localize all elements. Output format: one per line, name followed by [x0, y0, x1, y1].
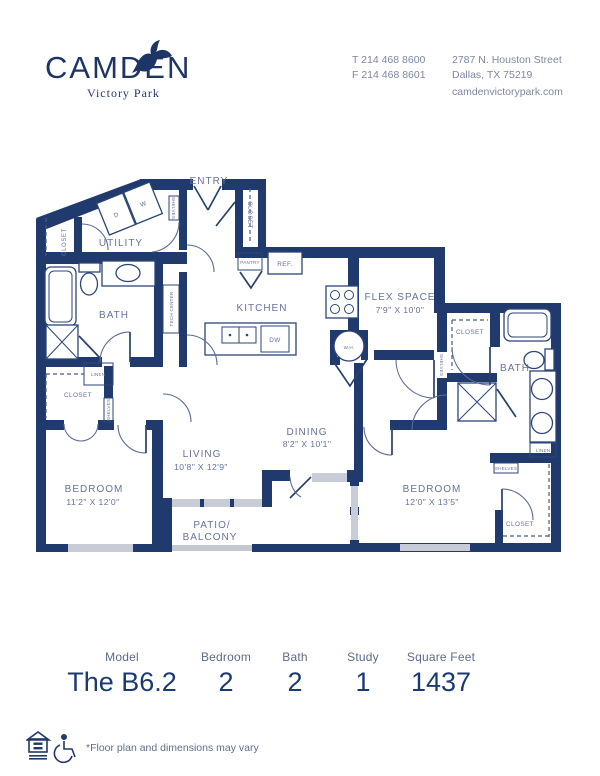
dim-living: 10'8" X 12'9" — [174, 462, 228, 472]
kitchen-island — [205, 323, 296, 355]
label-shelves-utility: SHELVES — [171, 197, 176, 219]
label-utility: UTILITY — [99, 238, 143, 249]
summary-study: Study 1 — [347, 650, 379, 698]
label-patio-2: BALCONY — [183, 532, 238, 543]
label-closet-bath2: CLOSET — [456, 329, 484, 336]
bathtub-1 — [45, 267, 76, 326]
label-bath2: BATH — [500, 363, 530, 374]
summary-study-value: 1 — [347, 667, 379, 698]
toilet-1 — [79, 263, 100, 295]
label-linen-2: LINEN — [536, 448, 551, 453]
summary-model: Model The B6.2 — [67, 650, 177, 698]
dim-dining: 8'2" X 10'1" — [283, 439, 332, 449]
footer-icons — [26, 730, 82, 764]
summary-bath-value: 2 — [282, 667, 308, 698]
summary-bedroom-value: 2 — [201, 667, 251, 698]
label-shelves-bedroom1: SHELVES — [106, 399, 111, 421]
washer-dryer — [97, 182, 163, 235]
dim-bedroom1: 11'2" X 12'0" — [66, 497, 119, 507]
label-pantry: PANTRY — [240, 260, 259, 265]
bathtub-2 — [504, 309, 551, 341]
dim-bedroom2: 12'0" X 13'5" — [405, 497, 459, 507]
label-living: LIVING — [183, 449, 222, 460]
summary-model-label: Model — [67, 650, 177, 664]
summary-bath-label: Bath — [282, 650, 308, 664]
label-entry: ENTRY — [190, 176, 229, 187]
label-closet-entry: CLOSET — [246, 201, 252, 229]
equal-housing-icon — [27, 732, 49, 760]
label-closet-topleft: CLOSET — [62, 228, 68, 256]
shower-1 — [46, 325, 101, 359]
label-patio-1: PATIO/ — [193, 520, 230, 531]
label-bath1: BATH — [99, 310, 129, 321]
label-dining: DINING — [287, 427, 328, 438]
summary-study-label: Study — [347, 650, 379, 664]
label-wh: W.H. — [344, 345, 355, 350]
label-linen-1: LINEN — [91, 372, 106, 377]
floorplan-page: CAMDEN Victory Park T 214 468 8600 F 214… — [0, 0, 600, 776]
door-swings — [64, 186, 533, 520]
label-ref: REF. — [277, 261, 292, 268]
summary-sqft-label: Square Feet — [407, 650, 475, 664]
label-kitchen: KITCHEN — [237, 303, 288, 314]
label-bedroom1: BEDROOM — [65, 484, 124, 495]
label-dw: DW — [269, 337, 281, 344]
label-bedroom2: BEDROOM — [403, 484, 462, 495]
label-flex-space: FLEX SPACE — [365, 292, 436, 303]
label-shelves-bedroom2: SHELVES — [495, 466, 517, 471]
shower-2 — [458, 383, 516, 421]
stove — [326, 286, 358, 318]
label-tech-center: TECH CENTER — [169, 291, 174, 326]
vanity-sink-1 — [102, 261, 155, 286]
summary-sqft: Square Feet 1437 — [407, 650, 475, 698]
summary-bath: Bath 2 — [282, 650, 308, 698]
summary-sqft-value: 1437 — [407, 667, 475, 698]
summary-bedroom: Bedroom 2 — [201, 650, 251, 698]
vanity-double-sink-2 — [530, 371, 556, 442]
label-closet-bedroom1: CLOSET — [64, 392, 92, 399]
label-shelves-bath2: SHELVES — [439, 354, 444, 376]
summary-bedroom-label: Bedroom — [201, 650, 251, 664]
label-closet-bedroom2: CLOSET — [506, 521, 534, 528]
disclaimer-text: *Floor plan and dimensions may vary — [86, 742, 259, 754]
dim-flex-space: 7'9" X 10'0" — [376, 305, 425, 315]
summary-model-value: The B6.2 — [67, 667, 177, 698]
wheelchair-accessible-icon — [54, 734, 75, 762]
